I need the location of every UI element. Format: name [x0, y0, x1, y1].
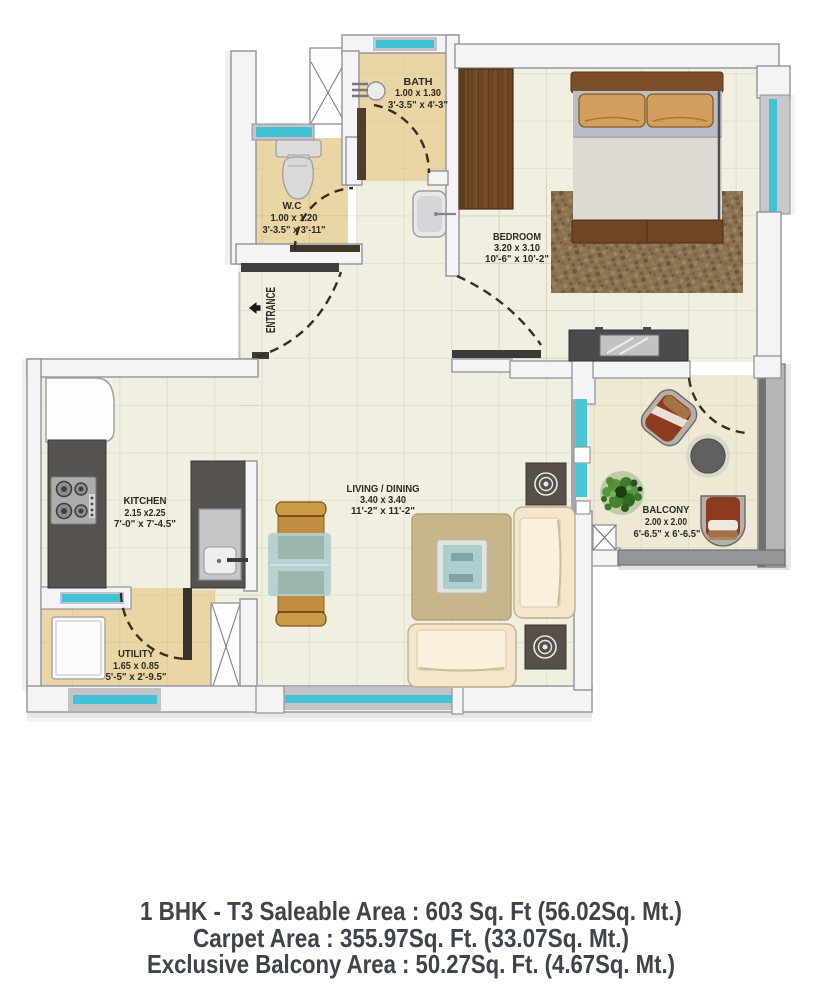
svg-text:BALCONY: BALCONY	[643, 504, 690, 516]
svg-text:ENTRANCE: ENTRANCE	[264, 287, 278, 333]
svg-text:1 BHK - T3 Saleable Area : 603: 1 BHK - T3 Saleable Area : 603 Sq. Ft (5…	[140, 896, 682, 926]
svg-text:2.00 x 2.00: 2.00 x 2.00	[645, 516, 687, 528]
svg-text:1.00 x 1.30: 1.00 x 1.30	[395, 87, 441, 99]
svg-text:3'-3.5" x 4'-3": 3'-3.5" x 4'-3"	[388, 99, 448, 111]
svg-text:UTILITY: UTILITY	[118, 648, 154, 660]
svg-text:6'-6.5" x 6'-6.5": 6'-6.5" x 6'-6.5"	[634, 528, 701, 540]
svg-text:7'-0" x 7'-4.5": 7'-0" x 7'-4.5"	[114, 518, 176, 530]
svg-text:Exclusive Balcony Area : 50.27: Exclusive Balcony Area : 50.27Sq. Ft. (4…	[147, 949, 675, 979]
svg-text:W.C: W.C	[283, 200, 302, 212]
svg-text:11'-2" x 11'-2": 11'-2" x 11'-2"	[351, 505, 415, 517]
svg-text:KITCHEN: KITCHEN	[124, 495, 167, 507]
svg-text:3'-3.5" x 3'-11": 3'-3.5" x 3'-11"	[263, 224, 326, 236]
svg-text:1.00 x 1.20: 1.00 x 1.20	[271, 212, 318, 224]
svg-text:5'-5" x 2'-9.5": 5'-5" x 2'-9.5"	[106, 671, 167, 683]
svg-text:10'-6" x 10'-2": 10'-6" x 10'-2"	[485, 253, 549, 265]
